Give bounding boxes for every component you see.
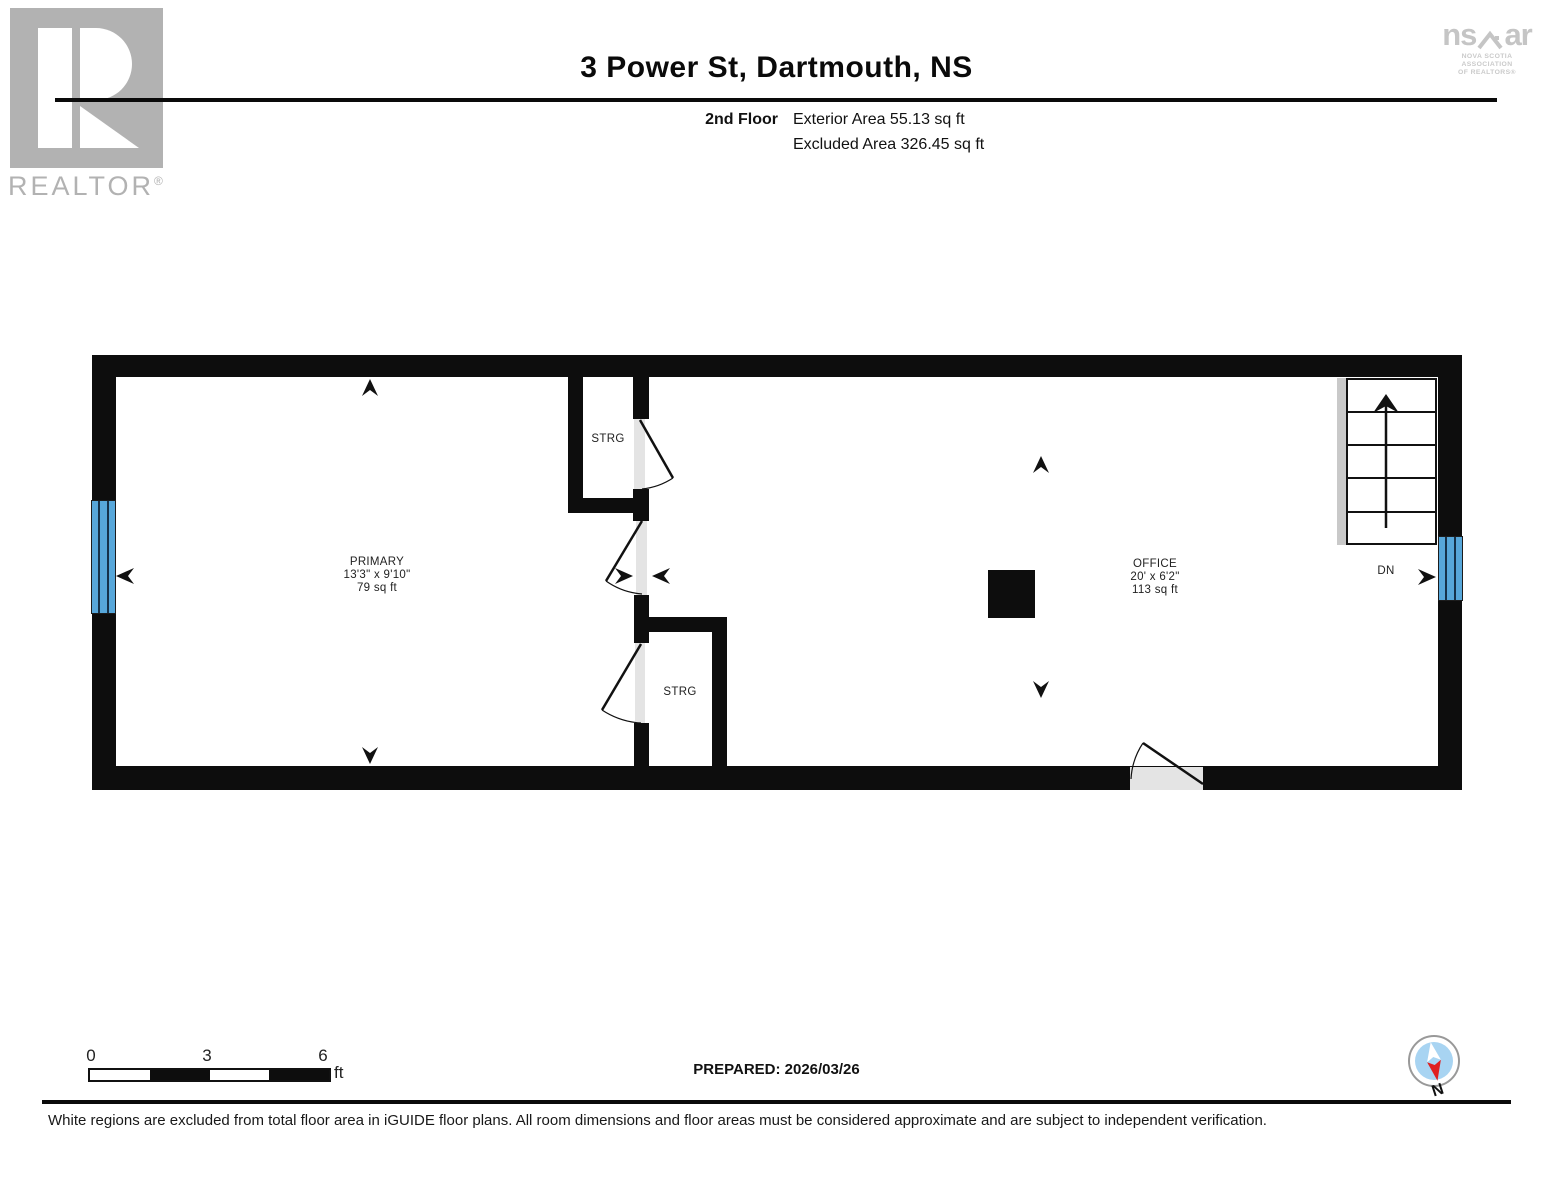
nsar-caption-line1: NOVA SCOTIA ASSOCIATION (1437, 53, 1537, 69)
realtor-logo-icon (10, 8, 163, 168)
realtor-logo-wordmark: REALTOR® (8, 171, 163, 202)
header-divider (55, 98, 1497, 102)
door-slab-storage-top (634, 419, 645, 489)
room-label-primary-area: 79 sq ft (277, 582, 477, 595)
room-label-office-name: OFFICE (1055, 558, 1255, 571)
nsar-ns-text: ns (1442, 20, 1476, 50)
page-title: 3 Power St, Dartmouth, NS (0, 51, 1553, 85)
room-label-office-dimensions: 20' x 6'2" (1055, 571, 1255, 584)
room-label-primary-dimensions: 13'3" x 9'10" (277, 569, 477, 582)
arrow-down-office-icon (1033, 681, 1049, 698)
nsar-roof-icon (1477, 28, 1503, 50)
registered-mark: ® (154, 174, 163, 188)
arrow-middle-right-icon (615, 568, 633, 584)
wall-top (92, 355, 1462, 377)
stairs (1346, 378, 1437, 545)
footer-divider (42, 1100, 1511, 1104)
plan-linework (0, 0, 1553, 1200)
door-slab-middle (636, 521, 647, 595)
room-label-primary-name: PRIMARY (277, 556, 477, 569)
exterior-area-text: Exterior Area 55.13 sq ft (793, 111, 965, 129)
arrow-middle-left-icon (652, 568, 670, 584)
window-left (91, 500, 116, 614)
nsar-ar-text: ar (1504, 20, 1531, 50)
nsar-caption-line2: OF REALTORS® (1437, 69, 1537, 77)
pillar (988, 570, 1035, 618)
arrow-down-primary-icon (362, 747, 378, 764)
room-label-storage-top: STRG (558, 433, 658, 446)
arrow-up-primary-icon (362, 379, 378, 396)
excluded-area-text: Excluded Area 326.45 sq ft (793, 136, 984, 154)
door-slab-bottom-wall (1130, 767, 1203, 790)
window-right (1438, 536, 1463, 601)
disclaimer-text: White regions are excluded from total fl… (48, 1112, 1267, 1129)
door-slab-storage-bottom (635, 643, 645, 723)
prepared-date: PREPARED: 2026/03/26 (0, 1061, 1553, 1078)
wall-bottom (92, 766, 1462, 790)
wall-spine-mid1 (633, 489, 649, 521)
room-label-storage-bottom: STRG (630, 686, 730, 699)
stairs-dn-label: DN (1346, 565, 1426, 578)
floor-plan-page: { "header": { "realtor_logo_text": "REAL… (0, 0, 1553, 1200)
stairs-side-strip (1337, 378, 1346, 545)
arrow-left-window-icon (116, 568, 134, 584)
wall-spine-lower (634, 723, 649, 766)
wall-spine-upper (633, 377, 649, 419)
arrow-up-office-icon (1033, 456, 1049, 473)
room-label-office-area: 113 sq ft (1055, 584, 1255, 597)
floor-label: 2nd Floor (600, 111, 778, 129)
nsar-logo: ns ar NOVA SCOTIA ASSOCIATION OF REALTOR… (1437, 20, 1537, 77)
